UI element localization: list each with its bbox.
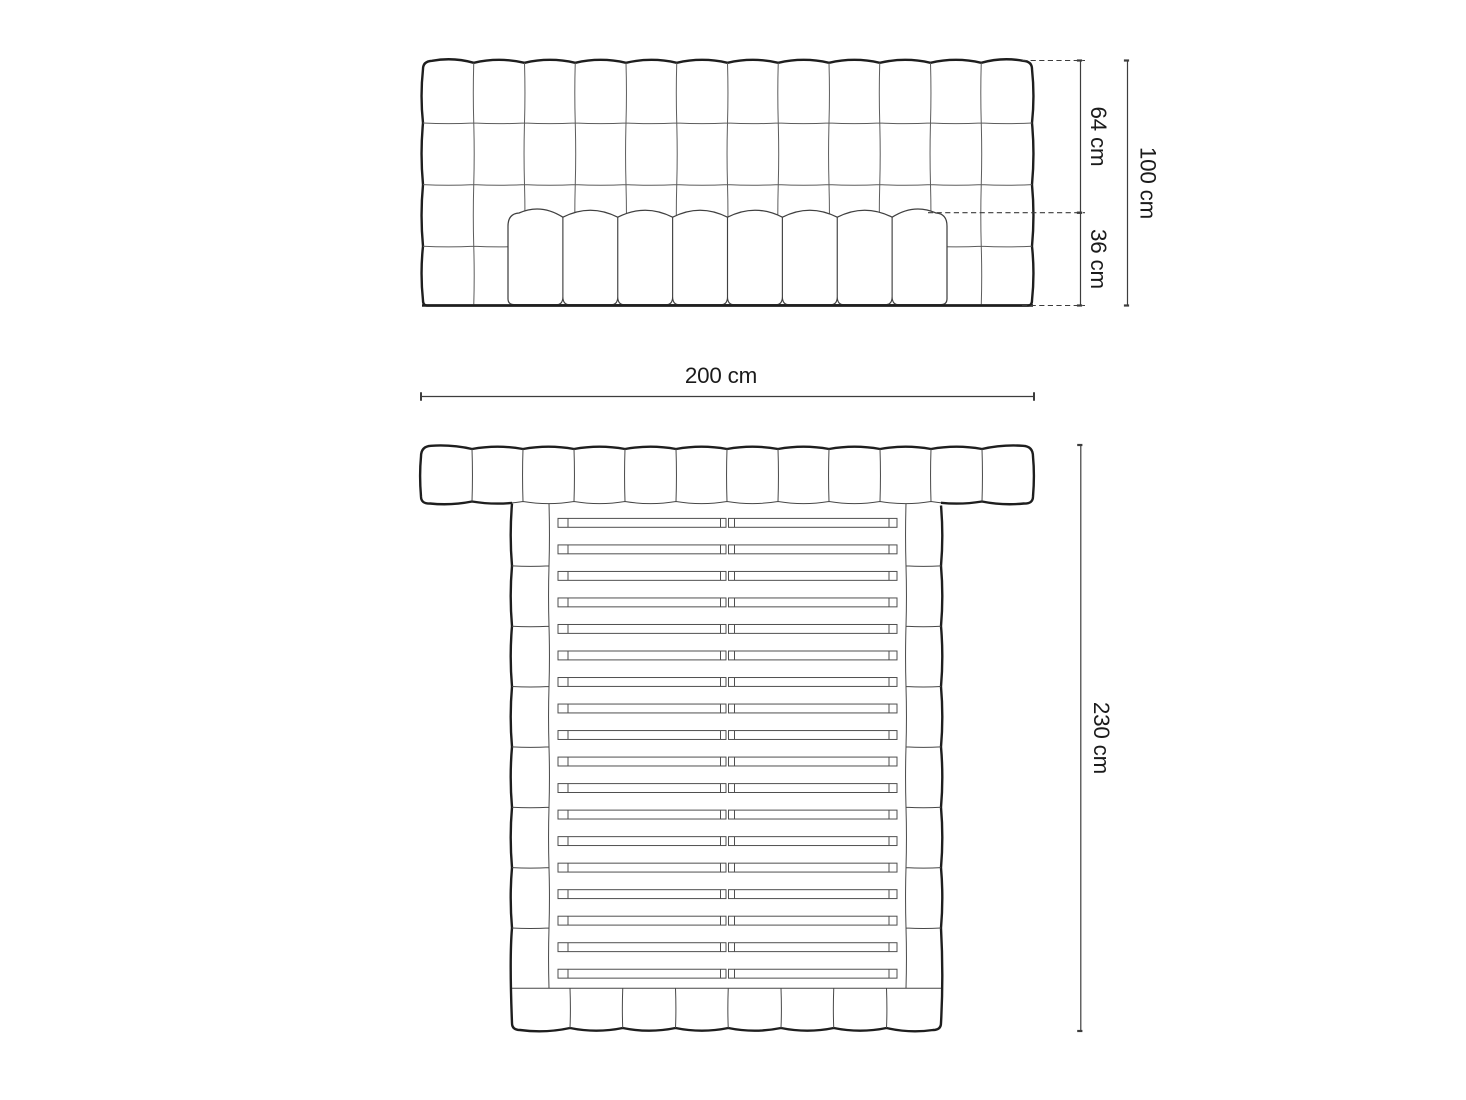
svg-text:100 cm: 100 cm bbox=[1136, 147, 1161, 219]
svg-text:36 cm: 36 cm bbox=[1086, 229, 1111, 289]
svg-text:64 cm: 64 cm bbox=[1086, 107, 1111, 167]
svg-text:230 cm: 230 cm bbox=[1089, 702, 1114, 774]
svg-text:200 cm: 200 cm bbox=[685, 363, 757, 388]
